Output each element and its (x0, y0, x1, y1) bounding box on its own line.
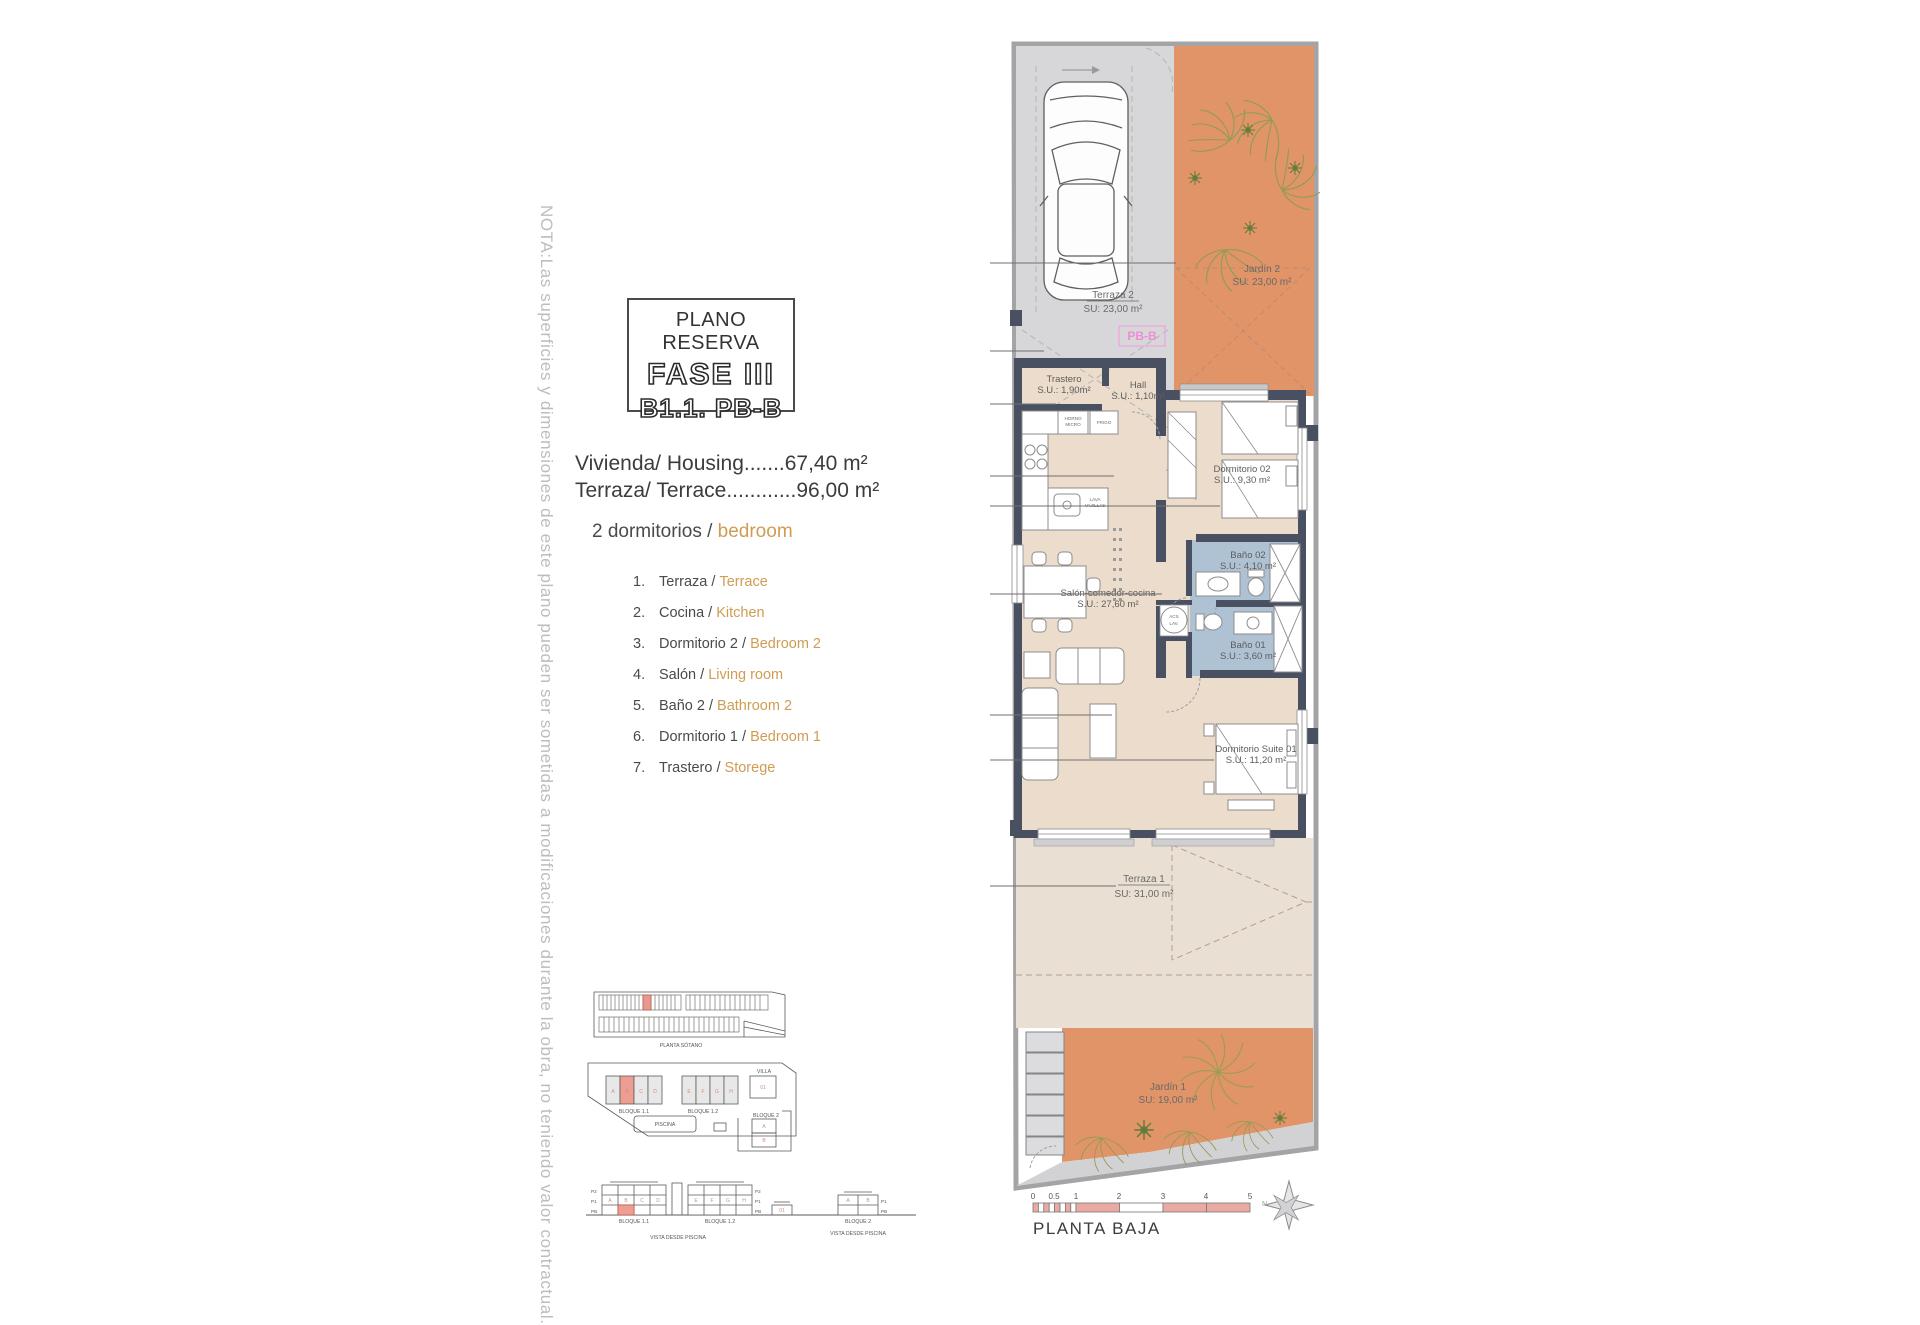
suite-label: Dormitorio Suite 01 S.U.: 11,20 m² (1215, 744, 1296, 766)
svg-text:PB: PB (591, 1209, 597, 1214)
svg-text:P2: P2 (755, 1189, 761, 1194)
svg-text:SU: 23,00 m²: SU: 23,00 m² (1233, 277, 1293, 288)
bedrooms-en: bedroom (718, 521, 793, 542)
planta-baja-caption: PLANTA BAJA (1033, 1219, 1161, 1238)
site-overview: A B C D BLOQUE 1.1 E F G H BLOQUE 1.2 VI… (588, 1063, 796, 1151)
svg-text:Baño 01: Baño 01 (1230, 640, 1265, 651)
svg-text:C: C (640, 1198, 644, 1204)
svg-text:G: G (726, 1198, 730, 1204)
svg-text:HORNO: HORNO (1064, 416, 1082, 421)
legend-item: 3.Dormitorio 2 / Bedroom 2 (633, 636, 821, 667)
svg-text:S.U.: 1,90m²: S.U.: 1,90m² (1037, 385, 1090, 396)
highlighted-elevation-unit (618, 1205, 634, 1215)
svg-text:0.5: 0.5 (1048, 1192, 1060, 1201)
svg-text:VISTA DESDE PISCINA: VISTA DESDE PISCINA (830, 1231, 886, 1237)
svg-text:P1: P1 (881, 1199, 887, 1204)
svg-text:S.U.: 1,10m²: S.U.: 1,10m² (1111, 391, 1164, 402)
svg-text:Baño 02: Baño 02 (1230, 550, 1265, 561)
bloque2-label: BLOQUE 2 (753, 1113, 779, 1119)
svg-text:S.U.: 27,60 m²: S.U.: 27,60 m² (1077, 599, 1138, 610)
svg-text:SU: 31,00 m²: SU: 31,00 m² (1115, 889, 1175, 900)
legend-item: 5.Baño 2 / Bathroom 2 (633, 698, 821, 729)
svg-text:B: B (762, 1138, 766, 1144)
compass-star: N (1262, 1181, 1313, 1232)
svg-text:PB: PB (755, 1209, 761, 1214)
svg-text:BLOQUE 1.2: BLOQUE 1.2 (705, 1219, 735, 1225)
bloque11-label: BLOQUE 1.1 (619, 1109, 649, 1115)
svg-text:FRIGO: FRIGO (1097, 420, 1112, 425)
legend-item: 2.Cocina / Kitchen (633, 605, 821, 636)
area-summary: Vivienda/ Housing.......67,40 m² Terraza… (575, 450, 879, 504)
dormitorio2-label: Dormitorio 02 S.U.: 9,30 m² (1213, 464, 1270, 486)
car (1040, 82, 1132, 300)
svg-text:Dormitorio 02: Dormitorio 02 (1213, 464, 1270, 475)
svg-text:PISCINA: PISCINA (655, 1122, 676, 1128)
highlighted-parking-spot (643, 995, 651, 1010)
svg-text:F: F (701, 1089, 704, 1095)
svg-text:Terraza 1: Terraza 1 (1123, 874, 1165, 885)
svg-text:Jardín 2: Jardín 2 (1244, 264, 1281, 275)
svg-text:C: C (639, 1089, 643, 1095)
svg-text:S.U.: 4,10 m²: S.U.: 4,10 m² (1220, 561, 1276, 572)
svg-text:ACS: ACS (1169, 614, 1178, 619)
plan-title: PLANO RESERVA (629, 309, 793, 355)
svg-text:Dormitorio Suite 01: Dormitorio Suite 01 (1215, 744, 1296, 755)
margin-note: NOTA:Las superficies y dimensiones de es… (536, 205, 556, 1115)
svg-text:P1: P1 (591, 1199, 597, 1204)
svg-text:01: 01 (760, 1085, 766, 1091)
legend-item: 4.Salón / Living room (633, 667, 821, 698)
legend-item: 6.Dormitorio 1 / Bedroom 1 (633, 729, 821, 760)
svg-text:D: D (656, 1198, 660, 1204)
floor-plan-page: { "note": {"text": "NOTA:Las superficies… (0, 0, 1920, 1280)
svg-text:LAVA: LAVA (1089, 497, 1101, 502)
acs-closet: ACS LAV. (1160, 605, 1188, 636)
jardin2-zone (1174, 46, 1314, 396)
svg-text:P2: P2 (591, 1189, 597, 1194)
phase-title: FASE III (629, 358, 793, 392)
svg-text:D: D (653, 1089, 657, 1095)
bloque2-elevation: P1 PB A B BLOQUE 2 VISTA DESDE PISCINA (816, 1192, 916, 1237)
bedrooms-line: 2 dormitorios / bedroom (592, 521, 793, 543)
svg-text:F: F (710, 1198, 713, 1204)
svg-text:S.U.: 9,30 m²: S.U.: 9,30 m² (1214, 475, 1270, 486)
housing-area: Vivienda/ Housing.......67,40 m² (575, 450, 879, 477)
unit-code: B1.1. PB-B (629, 393, 793, 424)
svg-text:BLOQUE 2: BLOQUE 2 (845, 1219, 871, 1225)
bedrooms-es: 2 dormitorios / (592, 521, 712, 542)
svg-text:4: 4 (1204, 1192, 1209, 1201)
svg-text:S.U.: 3,60 m²: S.U.: 3,60 m² (1220, 651, 1276, 662)
piscina: PISCINA (634, 1116, 696, 1132)
villa-label: VILLA (757, 1069, 772, 1075)
svg-text:PB-B: PB-B (1127, 329, 1157, 343)
bloque2-site: BLOQUE 2 A B (738, 1111, 791, 1151)
svg-text:G: G (715, 1089, 719, 1095)
svg-text:Hall: Hall (1130, 380, 1146, 391)
svg-text:1: 1 (1074, 1192, 1079, 1201)
legend-item: 1.Terraza / Terrace (633, 574, 821, 605)
site-diagrams: PLANTA SÓTANO A B C D BLOQUE 1.1 E F G H… (586, 983, 996, 1263)
legend-item: 7.Trastero / Storege (633, 760, 821, 791)
vista-caption: VISTA DESDE PISCINA (650, 1235, 706, 1241)
svg-text:Jardín 1: Jardín 1 (1150, 1082, 1187, 1093)
svg-text:P1: P1 (755, 1199, 761, 1204)
basement-plan: PLANTA SÓTANO (594, 992, 785, 1049)
svg-text:2: 2 (1117, 1192, 1122, 1201)
room-legend: 1.Terraza / Terrace 2.Cocina / Kitchen 3… (633, 574, 821, 791)
scale-bar: 0 0.5 1 2 3 4 5 PLANTA BAJA (1031, 1192, 1253, 1238)
svg-text:H: H (742, 1198, 746, 1204)
svg-text:3: 3 (1161, 1192, 1166, 1201)
svg-text:H: H (729, 1089, 733, 1095)
tv-unit (1090, 704, 1116, 758)
svg-text:5: 5 (1248, 1192, 1253, 1201)
svg-text:01: 01 (779, 1208, 785, 1214)
terraza1-zone (1016, 838, 1313, 1028)
svg-text:BLOQUE 1.1: BLOQUE 1.1 (619, 1219, 649, 1225)
svg-text:Trastero: Trastero (1046, 374, 1081, 385)
bloque12-label: BLOQUE 1.2 (688, 1109, 718, 1115)
svg-text:PB: PB (881, 1209, 887, 1214)
svg-text:LAV.: LAV. (1169, 621, 1178, 626)
svg-text:0: 0 (1031, 1192, 1036, 1201)
svg-text:SU: 19,00 m²: SU: 19,00 m² (1139, 1095, 1199, 1106)
terrace-area: Terraza/ Terrace............96,00 m² (575, 477, 879, 504)
svg-text:MICRO: MICRO (1065, 422, 1081, 427)
svg-text:S.U.: 11,20 m²: S.U.: 11,20 m² (1226, 755, 1287, 766)
basement-caption: PLANTA SÓTANO (660, 1042, 702, 1049)
title-block: PLANO RESERVA FASE III B1.1. PB-B (627, 298, 795, 412)
floor-plan: HORNO MICRO FRIGO LAVA VAJILLAS (990, 28, 1335, 1258)
svg-text:Terraza 2: Terraza 2 (1092, 290, 1134, 301)
garden-steps (1026, 1032, 1064, 1155)
svg-text:SU: 23,00 m²: SU: 23,00 m² (1084, 304, 1144, 315)
svg-text:A: A (762, 1124, 766, 1130)
